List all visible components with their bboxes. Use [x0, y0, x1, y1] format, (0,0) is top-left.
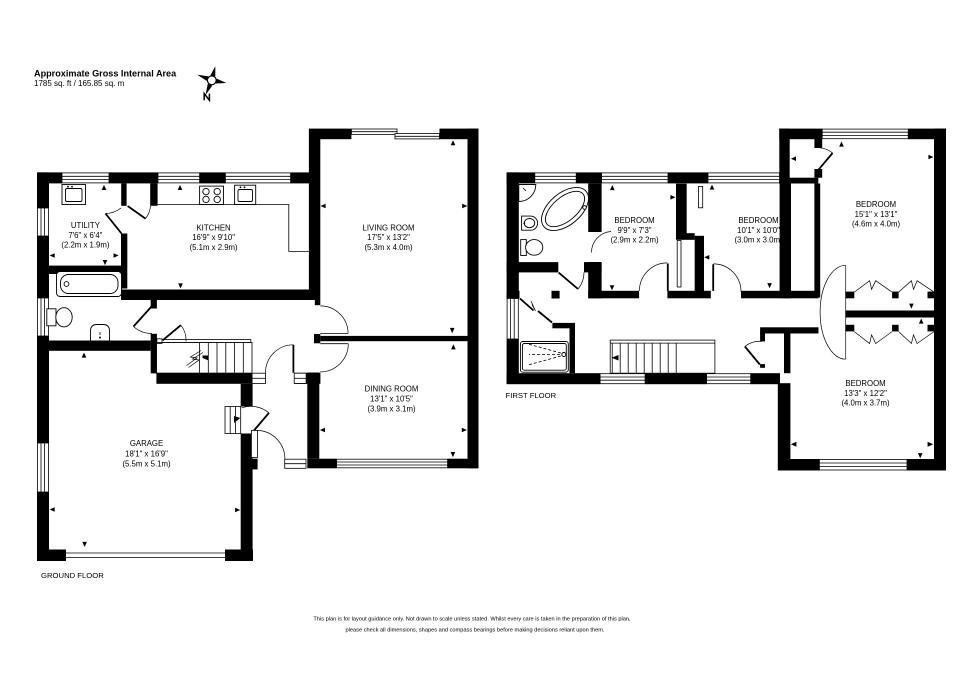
- svg-text:13'1" x 10'5": 13'1" x 10'5": [370, 395, 413, 404]
- svg-text:BEDROOM: BEDROOM: [845, 379, 885, 388]
- svg-text:(3.9m x 3.1m): (3.9m x 3.1m): [367, 404, 415, 413]
- svg-text:DINING ROOM: DINING ROOM: [365, 385, 419, 394]
- svg-text:please check all dimensions, s: please check all dimensions, shapes and …: [346, 628, 605, 634]
- svg-text:16'9" x 9'10": 16'9" x 9'10": [192, 233, 235, 242]
- svg-text:7'6" x 6'4": 7'6" x 6'4": [68, 231, 102, 240]
- svg-text:(2.2m x 1.9m): (2.2m x 1.9m): [61, 241, 109, 250]
- svg-text:1785 sq. ft / 165.85 sq. m: 1785 sq. ft / 165.85 sq. m: [34, 79, 125, 88]
- svg-text:18'1" x 16'9": 18'1" x 16'9": [125, 449, 168, 458]
- svg-text:GARAGE: GARAGE: [130, 439, 163, 448]
- svg-text:(5.3m x 4.0m): (5.3m x 4.0m): [364, 243, 412, 252]
- svg-text:(5.1m x 2.9m): (5.1m x 2.9m): [190, 243, 238, 252]
- svg-text:Approximate Gross Internal Are: Approximate Gross Internal Area: [34, 69, 177, 79]
- svg-text:BEDROOM: BEDROOM: [856, 200, 896, 209]
- svg-text:13'3" x 12'2": 13'3" x 12'2": [844, 389, 887, 398]
- svg-text:BEDROOM: BEDROOM: [738, 216, 778, 225]
- svg-text:17'5" x 13'2": 17'5" x 13'2": [367, 233, 410, 242]
- svg-text:(4.0m x 3.7m): (4.0m x 3.7m): [841, 399, 889, 408]
- svg-text:(2.9m x 2.2m): (2.9m x 2.2m): [610, 236, 658, 245]
- svg-text:KITCHEN: KITCHEN: [196, 223, 230, 232]
- svg-text:This plan is for layout guidan: This plan is for layout guidance only. N…: [313, 617, 631, 623]
- svg-text:GROUND FLOOR: GROUND FLOOR: [41, 571, 104, 580]
- svg-text:9'9" x 7'3": 9'9" x 7'3": [617, 226, 651, 235]
- svg-text:10'1" x 10'0": 10'1" x 10'0": [737, 226, 780, 235]
- svg-text:BEDROOM: BEDROOM: [614, 216, 654, 225]
- svg-text:UTILITY: UTILITY: [71, 221, 101, 230]
- svg-text:(5.5m x 5.1m): (5.5m x 5.1m): [122, 460, 170, 469]
- svg-text:LIVING ROOM: LIVING ROOM: [363, 223, 415, 232]
- svg-text:FIRST FLOOR: FIRST FLOOR: [506, 391, 557, 400]
- svg-text:(4.6m x 4.0m): (4.6m x 4.0m): [852, 220, 900, 229]
- svg-text:(3.0m x 3.0m): (3.0m x 3.0m): [734, 236, 782, 245]
- svg-text:15'1" x 13'1": 15'1" x 13'1": [855, 210, 898, 219]
